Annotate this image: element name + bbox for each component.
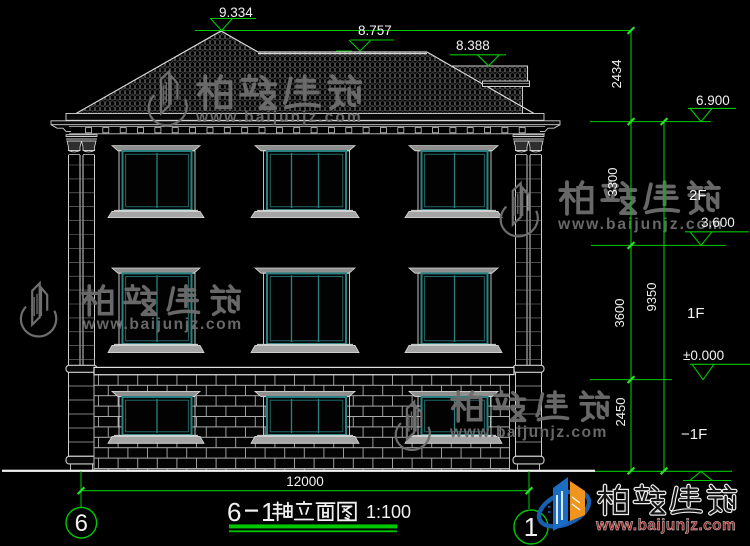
svg-text:www.baijunjz.com: www.baijunjz.com xyxy=(557,216,724,233)
svg-text:www.baijunjz.com: www.baijunjz.com xyxy=(449,424,608,441)
svg-text:6.900: 6.900 xyxy=(696,93,730,108)
svg-text:6: 6 xyxy=(227,497,241,527)
svg-text:8.757: 8.757 xyxy=(358,23,392,38)
svg-text:12000: 12000 xyxy=(286,474,324,489)
svg-text:2434: 2434 xyxy=(609,60,624,89)
svg-text:2F: 2F xyxy=(689,187,707,204)
svg-text:9350: 9350 xyxy=(644,283,659,312)
svg-text:www.baijunjz.com: www.baijunjz.com xyxy=(82,316,243,333)
svg-text:2450: 2450 xyxy=(613,398,628,427)
svg-text:1: 1 xyxy=(261,497,275,527)
svg-text:1: 1 xyxy=(524,512,538,542)
svg-text:www.baijunjz.com: www.baijunjz.com xyxy=(595,517,736,534)
svg-text:−1F: −1F xyxy=(681,426,707,443)
svg-text:1:100: 1:100 xyxy=(366,502,411,522)
svg-text:1F: 1F xyxy=(687,305,705,322)
svg-text:8.388: 8.388 xyxy=(456,38,490,53)
svg-text:6: 6 xyxy=(75,510,88,537)
svg-text:9.334: 9.334 xyxy=(219,5,253,20)
svg-text:±0.000: ±0.000 xyxy=(683,348,724,363)
svg-text:3600: 3600 xyxy=(612,299,627,328)
svg-text:3300: 3300 xyxy=(605,168,620,197)
svg-text:www.baijunjz.com: www.baijunjz.com xyxy=(195,109,363,126)
svg-text:3.600: 3.600 xyxy=(701,215,735,230)
